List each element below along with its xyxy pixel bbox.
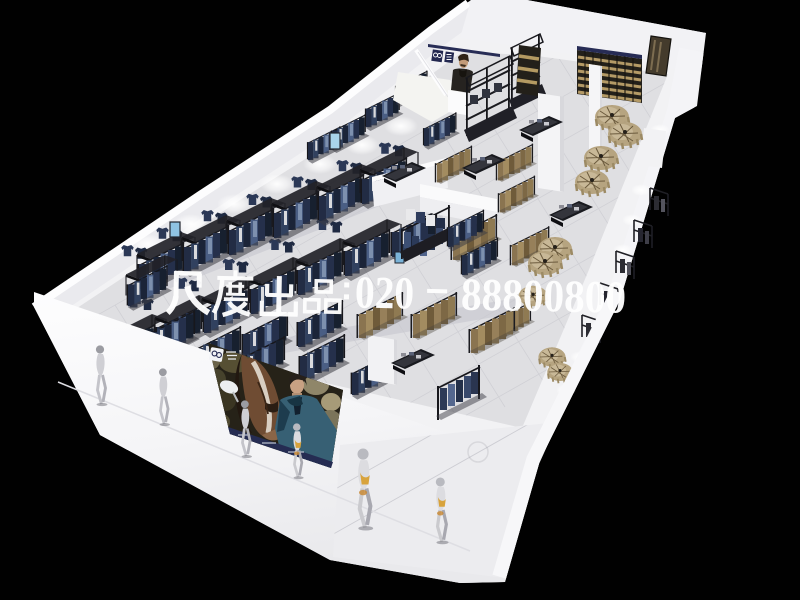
svg-text:88800800: 88800800 (461, 269, 627, 323)
svg-text:020: 020 (355, 267, 415, 319)
